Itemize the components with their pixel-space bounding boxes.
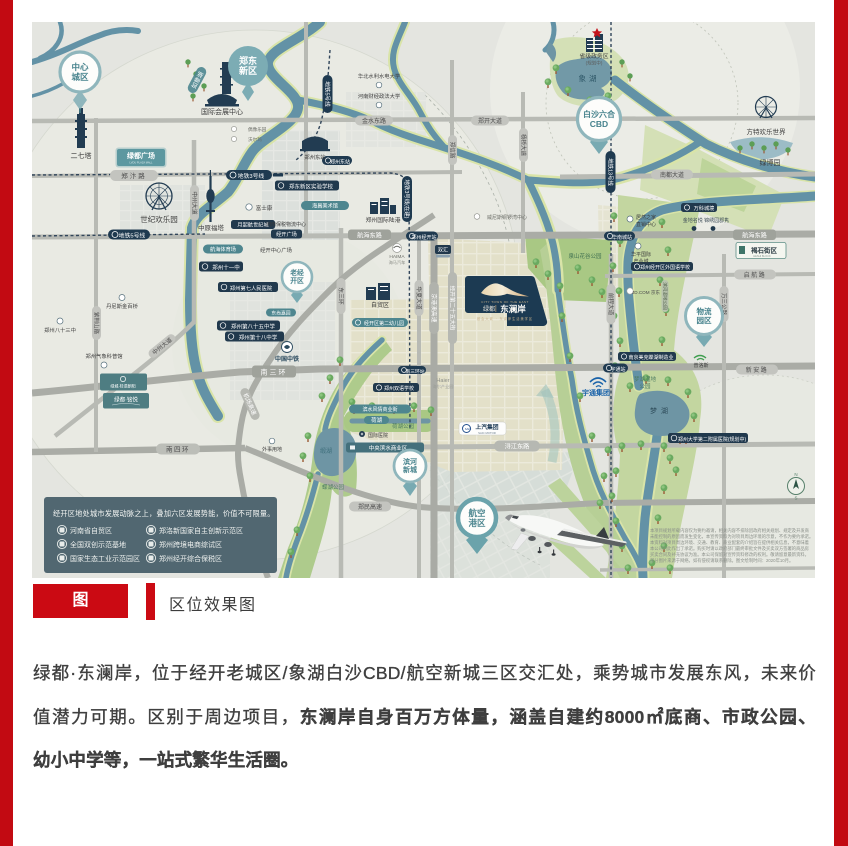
svg-text:老经: 老经	[289, 268, 304, 277]
svg-text:物流: 物流	[697, 306, 712, 316]
svg-text:LVDU PLAZA MALL: LVDU PLAZA MALL	[129, 161, 153, 165]
svg-text:上汽集团: 上汽集团	[475, 423, 498, 431]
svg-text:绿城·桂语朝阳: 绿城·桂语朝阳	[110, 383, 135, 389]
svg-text:航海体育场: 航海体育场	[210, 245, 236, 253]
svg-text:郑信路: 郑信路	[449, 142, 457, 159]
svg-text:航海东路: 航海东路	[357, 232, 383, 240]
svg-text:部分图片来源于网络，如有侵权请联系删除。图文绘制时间：202: 部分图片来源于网络，如有侵权请联系删除。图文绘制时间：2020年10月。	[650, 557, 793, 564]
svg-text:南三环: 南三环	[261, 368, 288, 377]
svg-text:城区: 城区	[71, 72, 89, 82]
svg-text:新安路: 新安路	[746, 366, 769, 374]
svg-text:都会大城 · 东澜岸生活美学区: 都会大城 · 东澜岸生活美学区	[477, 316, 533, 321]
svg-text:(规划中): (规划中)	[586, 60, 603, 67]
svg-text:经开广场: 经开广场	[276, 230, 297, 238]
svg-text:绿都: 绿都	[483, 305, 495, 313]
svg-text:国际会展中心: 国际会展中心	[201, 107, 243, 116]
svg-text:园区: 园区	[697, 316, 712, 325]
svg-text:国家生态工业示范园区: 国家生态工业示范园区	[70, 554, 140, 563]
svg-text:缎湖: 缎湖	[320, 447, 332, 455]
svg-text:河南财经政法大学: 河南财经政法大学	[358, 92, 400, 100]
svg-text:二七塔: 二七塔	[71, 151, 92, 160]
svg-text:自贸区: 自贸区	[371, 301, 389, 309]
svg-text:华平国际: 华平国际	[631, 251, 651, 258]
svg-text:居然之家: 居然之家	[636, 214, 656, 221]
svg-text:绿都·铭悦: 绿都·铭悦	[114, 396, 138, 404]
svg-text:沃尔玛: 沃尔玛	[248, 136, 262, 143]
svg-text:郑洛新国家自主创新示范区: 郑洛新国家自主创新示范区	[159, 526, 243, 535]
svg-text:地铁3号线(在建): 地铁3号线(在建)	[403, 180, 411, 219]
svg-text:外事用地: 外事用地	[262, 446, 282, 453]
svg-text:郑州经开区外国语学校: 郑州经开区外国语学校	[640, 264, 690, 271]
svg-text:富士康: 富士康	[256, 204, 273, 212]
svg-text:华北水利水电大学: 华北水利水电大学	[358, 72, 400, 80]
svg-text:东三环: 东三环	[337, 287, 345, 305]
svg-text:东尚嘉园: 东尚嘉园	[271, 310, 290, 317]
svg-text:本资料对项目周边环境、交通、教育、商业配套的介绍旨在提供相关: 本资料对项目周边环境、交通、教育、商业配套的介绍旨在提供相关信息，不意味着	[650, 539, 810, 546]
svg-text:经开第二十五大街: 经开第二十五大街	[449, 286, 457, 331]
svg-text:东澜岸: 东澜岸	[500, 304, 526, 314]
svg-text:白沙六合: 白沙六合	[583, 109, 616, 119]
svg-text:郑汴路: 郑汴路	[121, 171, 147, 180]
svg-text:航海东路: 航海东路	[742, 232, 768, 240]
svg-text:南都大道: 南都大道	[660, 171, 684, 179]
svg-text:河南保税物流中心: 河南保税物流中心	[266, 221, 306, 228]
svg-text:航空: 航空	[468, 508, 486, 518]
svg-text:郑州八十三中: 郑州八十三中	[44, 326, 76, 334]
svg-text:产业城: 产业城	[633, 258, 648, 265]
svg-text:郑州跨境电商综试区: 郑州跨境电商综试区	[159, 540, 222, 549]
svg-text:滨水风情商业街: 滨水风情商业街	[362, 406, 397, 413]
svg-text:郑州双语学校: 郑州双语学校	[384, 385, 414, 392]
svg-text:蝶湖公园: 蝶湖公园	[322, 483, 345, 491]
svg-text:郑东: 郑东	[239, 55, 257, 66]
svg-text:海马汽车: 海马汽车	[389, 259, 406, 266]
svg-text:S: S	[794, 496, 797, 501]
svg-text:荷湖公园: 荷湖公园	[392, 422, 415, 430]
svg-text:南四环: 南四环	[166, 445, 190, 454]
svg-text:丹尼斯金百桥: 丹尼斯金百桥	[106, 302, 138, 310]
svg-text:宇通站: 宇通站	[610, 366, 625, 373]
svg-text:郑民高速: 郑民高速	[358, 503, 382, 511]
svg-text:CBD: CBD	[590, 119, 608, 129]
svg-text:SAIC MOTOR: SAIC MOTOR	[478, 431, 496, 435]
svg-text:郑东新区实验学校: 郑东新区实验学校	[289, 183, 334, 191]
svg-text:新区: 新区	[239, 65, 257, 76]
svg-text:郑州国际陆港: 郑州国际陆港	[366, 216, 401, 224]
svg-text:万科城境: 万科城境	[694, 204, 715, 212]
svg-text:中州大道: 中州大道	[191, 191, 199, 214]
svg-text:全国双创示范基地: 全国双创示范基地	[70, 540, 126, 549]
svg-text:经开中心广场: 经开中心广场	[260, 246, 292, 254]
svg-text:梦湖湿地: 梦湖湿地	[634, 375, 657, 383]
svg-text:省级政务区: 省级政务区	[580, 52, 609, 60]
svg-text:南三环站: 南三环站	[405, 368, 424, 375]
svg-text:荷湖: 荷湖	[371, 416, 383, 424]
svg-text:杨桥大道: 杨桥大道	[520, 134, 528, 157]
svg-text:郑州十一中: 郑州十一中	[212, 264, 240, 272]
svg-text:经开区第二幼儿园: 经开区第二幼儿园	[364, 320, 404, 327]
svg-text:国际医院: 国际医院	[368, 432, 388, 439]
svg-text:港区: 港区	[468, 518, 486, 528]
svg-text:本项目规划所载内容仅为要约邀请，相关内容不排除因政府相关规划: 本项目规划所载内容仅为要约邀请，相关内容不排除因政府相关规划、规定及开发商	[650, 527, 810, 534]
svg-text:买卖合同及补充协议为准。本公司保留对宣传资料修改的权利。敬请: 买卖合同及补充协议为准。本公司保留对宣传资料修改的权利。敬请留意最新资料。	[650, 551, 809, 558]
svg-text:N: N	[794, 472, 797, 477]
svg-text:偶像乐园: 偶像乐园	[248, 126, 267, 133]
svg-text:郑州第十八中学: 郑州第十八中学	[239, 334, 278, 342]
svg-text:郑州大学第二附属医院(规划中): 郑州大学第二附属医院(规划中)	[678, 436, 747, 443]
svg-text:象湖: 象湖	[579, 73, 600, 83]
svg-text:未能控制的原因而发生变化，本宣传资料为对项目周边环境的示意，: 未能控制的原因而发生变化，本宣传资料为对项目周边环境的示意，不作为要约承诺。	[650, 533, 813, 540]
svg-text:方特欢乐世界: 方特欢乐世界	[747, 127, 787, 136]
svg-text:公园: 公园	[639, 383, 651, 390]
svg-text:郑州第七人民医院: 郑州第七人民医院	[230, 284, 273, 292]
svg-text:滨河湿地公园: 滨河湿地公园	[661, 282, 668, 310]
svg-text:浔江东路: 浔江东路	[505, 443, 531, 451]
svg-text:南京美克蝶湖制造业: 南京美克蝶湖制造业	[628, 354, 673, 361]
svg-text:地铁3号线: 地铁3号线	[238, 172, 265, 180]
svg-text:地铁5号线: 地铁5号线	[119, 232, 146, 240]
svg-text:SAIC: SAIC	[465, 427, 472, 431]
svg-text:京港澳高速: 京港澳高速	[430, 294, 438, 323]
svg-text:地铁5号线: 地铁5号线	[324, 81, 332, 107]
svg-text:河南省自贸区: 河南省自贸区	[70, 526, 112, 535]
svg-text:郑州经开站: 郑州经开站	[411, 234, 436, 241]
svg-text:泉山花谷公园: 泉山花谷公园	[568, 252, 602, 260]
svg-text:滨河: 滨河	[403, 457, 417, 466]
svg-text:本公司对此作出了承诺。购买时请以政府部门最终审批文件及买卖双: 本公司对此作出了承诺。购买时请以政府部门最终审批文件及买卖双方签署的商品房	[650, 545, 809, 552]
svg-text:威尼斯铜锣湾中心: 威尼斯铜锣湾中心	[487, 214, 527, 221]
svg-text:开区: 开区	[290, 277, 304, 285]
svg-text:郑州气象科普馆: 郑州气象科普馆	[85, 352, 122, 360]
svg-text:海尔产业园: 海尔产业园	[433, 383, 454, 390]
svg-text:中心: 中心	[71, 62, 89, 72]
svg-text:金地名悦 锦绣园郡隽: 金地名悦 锦绣园郡隽	[683, 217, 729, 224]
svg-text:华夏大道: 华夏大道	[415, 286, 423, 309]
svg-text:绿都广场: 绿都广场	[127, 151, 155, 160]
svg-text:中原福塔: 中原福塔	[198, 223, 225, 232]
svg-text:华南城站: 华南城站	[612, 234, 632, 241]
svg-text:褐石街区: 褐石街区	[750, 246, 778, 255]
svg-text:金水东路: 金水东路	[362, 117, 386, 125]
svg-text:经开区地处城市发展动脉之上，叠加六区发展势能，价值不可限量。: 经开区地处城市发展动脉之上，叠加六区发展势能，价值不可限量。	[53, 509, 275, 518]
svg-text:普洛斯: 普洛斯	[693, 362, 708, 369]
svg-text:HESHI BLOCK: HESHI BLOCK	[753, 254, 771, 258]
svg-text:世纪欢乐园: 世纪欢乐园	[140, 214, 178, 224]
svg-text:郑州经开综合保税区: 郑州经开综合保税区	[159, 554, 222, 563]
svg-text:月起航世纪城: 月起航世纪城	[237, 221, 269, 229]
svg-text:郑州东站: 郑州东站	[330, 159, 350, 166]
svg-text:郑开大道: 郑开大道	[478, 117, 502, 125]
svg-text:JD.COM 京东: JD.COM 京东	[632, 289, 660, 296]
svg-text:郑州东站: 郑州东站	[304, 153, 326, 161]
svg-text:前程大道: 前程大道	[607, 293, 615, 316]
svg-text:启航路: 启航路	[744, 271, 767, 279]
svg-text:地铁13号线: 地铁13号线	[607, 158, 615, 186]
svg-text:双汇: 双汇	[438, 246, 448, 254]
svg-text:梦湖: 梦湖	[650, 406, 672, 415]
svg-text:海昌美术馆: 海昌美术馆	[312, 202, 338, 210]
svg-text:绿博园: 绿博园	[760, 158, 781, 167]
svg-text:宇通集团: 宇通集团	[582, 388, 610, 397]
svg-text:中国中铁: 中国中铁	[275, 355, 299, 363]
svg-text:郑州第八十五中学: 郑州第八十五中学	[231, 323, 276, 331]
svg-text:紫荆山路: 紫荆山路	[93, 312, 101, 335]
svg-text:直销中心: 直销中心	[636, 221, 656, 228]
svg-text:新城: 新城	[403, 465, 417, 474]
